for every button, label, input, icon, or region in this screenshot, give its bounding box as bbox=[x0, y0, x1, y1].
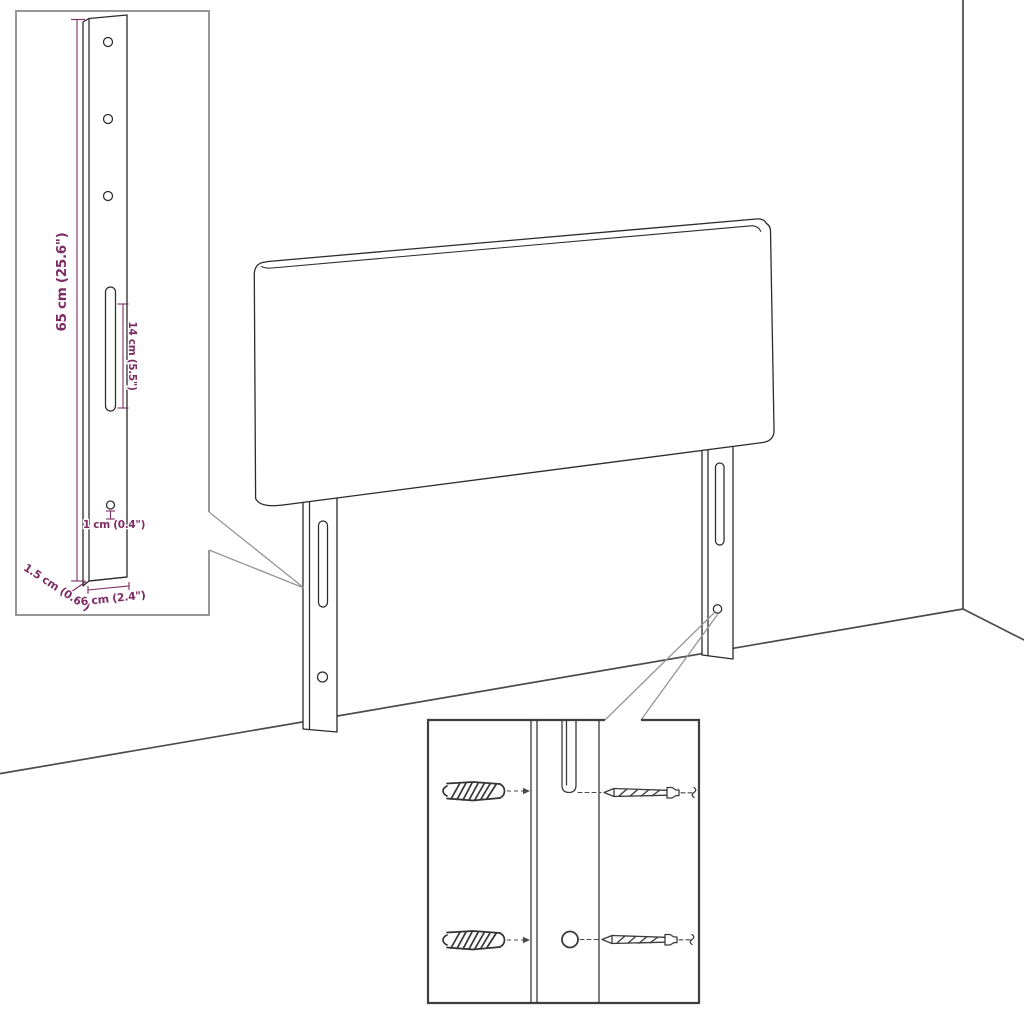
left-leg bbox=[303, 465, 337, 732]
hole-diameter-label: 1 cm (0.4") bbox=[83, 519, 145, 531]
bracket-drawing bbox=[83, 15, 127, 586]
slot-length-label: 14 cm (5.5") bbox=[126, 321, 138, 390]
leg-height-label: 65 cm (25.6") bbox=[54, 232, 70, 331]
hardware-inset bbox=[428, 720, 699, 1003]
floor-line-right bbox=[963, 609, 1024, 641]
right-leg bbox=[702, 436, 733, 659]
headboard-panel bbox=[254, 219, 774, 506]
leg-detail-callout-lines bbox=[209, 512, 304, 588]
assembly-diagram: 65 cm (25.6") 14 cm (5.5") 1 cm (0.4") 1… bbox=[0, 0, 1024, 1024]
